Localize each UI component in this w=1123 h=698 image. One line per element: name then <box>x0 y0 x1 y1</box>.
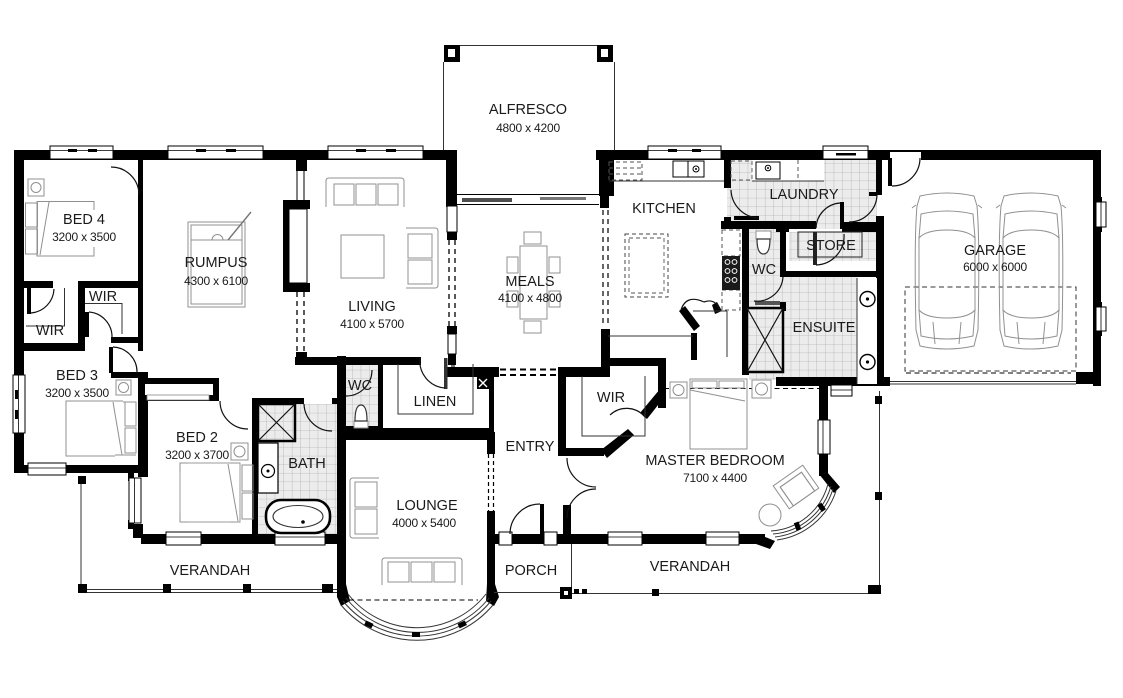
svg-text:4800 x 4200: 4800 x 4200 <box>496 121 560 135</box>
svg-text:MASTER BEDROOM: MASTER BEDROOM <box>645 453 784 469</box>
svg-text:MEALS: MEALS <box>505 274 554 290</box>
svg-text:PORCH: PORCH <box>505 563 557 579</box>
svg-text:7100 x 4400: 7100 x 4400 <box>683 471 747 485</box>
svg-text:VERANDAH: VERANDAH <box>170 563 251 579</box>
svg-text:STORE: STORE <box>806 238 856 254</box>
svg-text:WIR: WIR <box>89 289 117 305</box>
svg-text:LOUNGE: LOUNGE <box>396 498 458 514</box>
svg-text:3200 x 3500: 3200 x 3500 <box>52 230 116 244</box>
svg-text:LAUNDRY: LAUNDRY <box>769 187 838 203</box>
svg-text:WIR: WIR <box>36 323 64 339</box>
svg-text:WC: WC <box>752 262 776 278</box>
svg-text:BED 2: BED 2 <box>176 430 218 446</box>
svg-text:GARAGE: GARAGE <box>964 243 1026 259</box>
svg-text:4000 x 5400: 4000 x 5400 <box>392 516 456 530</box>
svg-text:KITCHEN: KITCHEN <box>632 201 696 217</box>
svg-text:4300 x 6100: 4300 x 6100 <box>184 274 248 288</box>
svg-text:BATH: BATH <box>288 456 326 472</box>
svg-text:WC: WC <box>348 378 372 394</box>
svg-text:WIR: WIR <box>597 390 625 406</box>
svg-text:ENSUITE: ENSUITE <box>793 320 856 336</box>
svg-text:ENTRY: ENTRY <box>506 439 555 455</box>
svg-text:BED 3: BED 3 <box>56 368 98 384</box>
svg-text:3200 x 3500: 3200 x 3500 <box>45 386 109 400</box>
svg-text:LINEN: LINEN <box>414 394 457 410</box>
svg-text:BED 4: BED 4 <box>63 212 105 228</box>
svg-text:LIVING: LIVING <box>348 299 396 315</box>
svg-text:RUMPUS: RUMPUS <box>185 255 248 271</box>
svg-text:3200 x 3700: 3200 x 3700 <box>165 448 229 462</box>
svg-text:VERANDAH: VERANDAH <box>650 559 731 575</box>
svg-text:6000 x 6000: 6000 x 6000 <box>963 260 1027 274</box>
svg-text:4100 x 4800: 4100 x 4800 <box>498 291 562 305</box>
svg-text:4100 x 5700: 4100 x 5700 <box>340 317 404 331</box>
svg-text:ALFRESCO: ALFRESCO <box>489 102 567 118</box>
